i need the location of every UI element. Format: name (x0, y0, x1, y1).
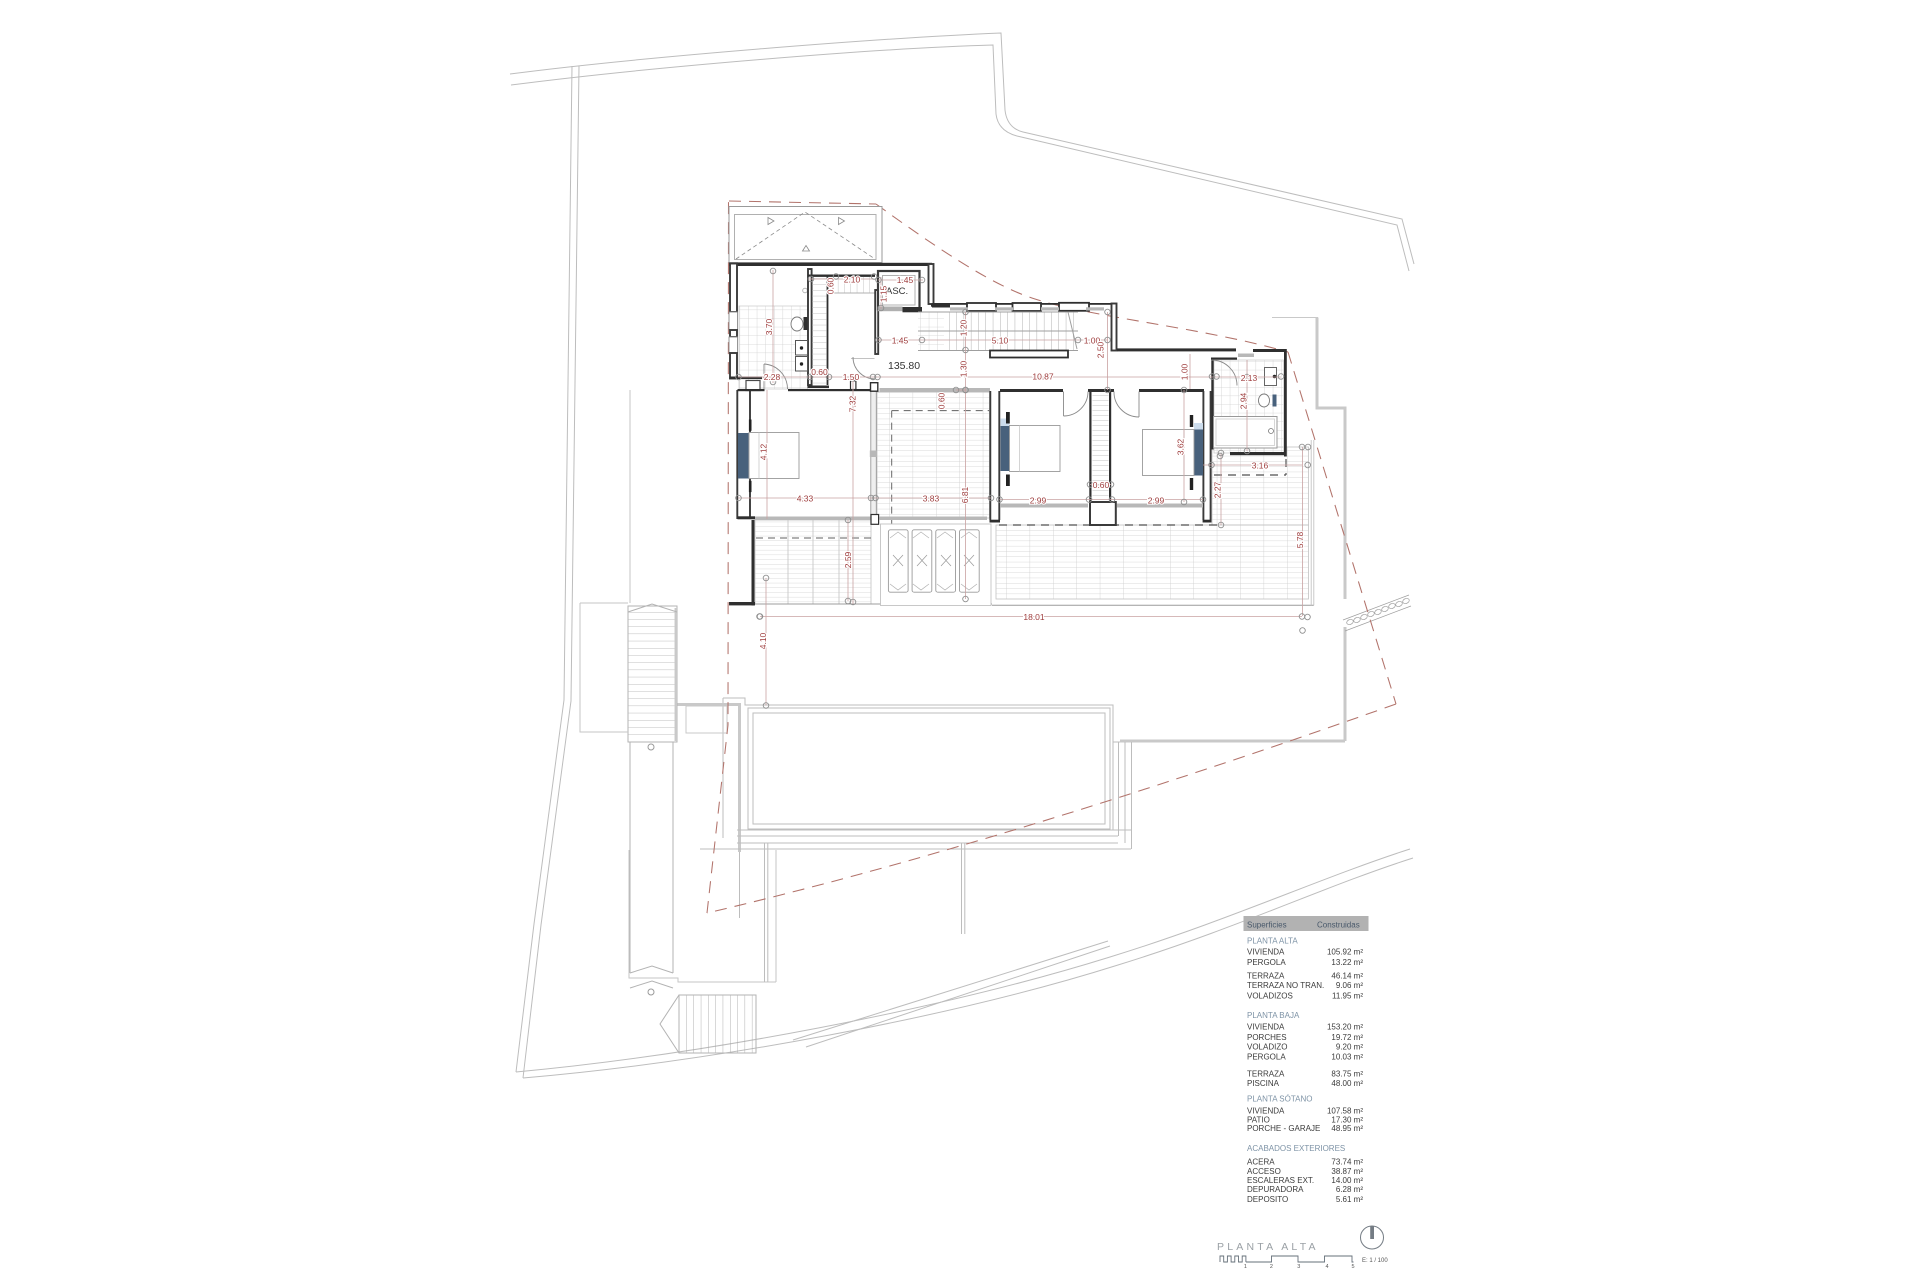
svg-text:4.10: 4.10 (758, 632, 768, 649)
svg-text:1.00: 1.00 (1180, 363, 1190, 380)
svg-text:7.32: 7.32 (848, 395, 858, 412)
svg-text:153.20 m²: 153.20 m² (1327, 1023, 1363, 1032)
svg-text:PLANTA ALTA: PLANTA ALTA (1247, 937, 1298, 946)
svg-text:ASC.: ASC. (886, 286, 908, 297)
svg-text:1.20: 1.20 (959, 319, 969, 336)
svg-text:DEPURADORA: DEPURADORA (1247, 1185, 1304, 1194)
svg-text:ACCESO: ACCESO (1247, 1167, 1281, 1176)
svg-text:PLANTA BAJA: PLANTA BAJA (1247, 1011, 1300, 1020)
svg-text:135.80: 135.80 (888, 360, 920, 372)
svg-text:3.83: 3.83 (923, 494, 940, 504)
svg-text:4.33: 4.33 (797, 494, 814, 504)
svg-text:PLANTA SÓTANO: PLANTA SÓTANO (1247, 1095, 1313, 1104)
svg-text:3.62: 3.62 (1176, 438, 1186, 455)
svg-text:1.50: 1.50 (843, 372, 860, 382)
svg-text:TERRAZA: TERRAZA (1247, 1070, 1285, 1079)
svg-text:48.00 m²: 48.00 m² (1331, 1079, 1363, 1088)
svg-text:18.01: 18.01 (1023, 612, 1045, 622)
svg-text:2.27: 2.27 (1213, 481, 1223, 498)
svg-text:2.28: 2.28 (764, 372, 781, 382)
svg-text:PISCINA: PISCINA (1247, 1079, 1280, 1088)
svg-text:2.13: 2.13 (1241, 373, 1258, 383)
svg-text:TERRAZA NO TRAN.: TERRAZA NO TRAN. (1247, 981, 1324, 990)
svg-text:ESCALERAS EXT.: ESCALERAS EXT. (1247, 1176, 1314, 1185)
svg-text:6.28 m²: 6.28 m² (1336, 1185, 1363, 1194)
svg-text:VOLADIZO: VOLADIZO (1247, 1043, 1287, 1052)
svg-text:0.60: 0.60 (826, 277, 836, 294)
svg-text:1.45: 1.45 (892, 336, 909, 346)
svg-text:9.06 m²: 9.06 m² (1336, 981, 1363, 990)
svg-text:5.78: 5.78 (1295, 531, 1305, 548)
svg-text:11.95 m²: 11.95 m² (1332, 992, 1363, 1001)
svg-text:1: 1 (1244, 1264, 1247, 1270)
svg-text:38.87 m²: 38.87 m² (1331, 1167, 1363, 1176)
svg-text:Construidas: Construidas (1317, 921, 1360, 930)
svg-text:VIVIENDA: VIVIENDA (1247, 948, 1285, 957)
svg-text:5.61 m²: 5.61 m² (1336, 1195, 1363, 1204)
svg-text:83.75 m²: 83.75 m² (1331, 1070, 1363, 1079)
svg-text:PORCHE - GARAJE: PORCHE - GARAJE (1247, 1124, 1320, 1133)
svg-text:46.14 m²: 46.14 m² (1331, 972, 1363, 981)
svg-text:2.94: 2.94 (1239, 392, 1249, 409)
svg-text:1.15: 1.15 (879, 285, 889, 302)
svg-text:9.20 m²: 9.20 m² (1336, 1043, 1363, 1052)
svg-text:PERGOLA: PERGOLA (1247, 958, 1286, 967)
svg-text:ACABADOS EXTERIORES: ACABADOS EXTERIORES (1247, 1144, 1345, 1153)
svg-text:105.92 m²: 105.92 m² (1327, 948, 1363, 957)
svg-text:DEPOSITO: DEPOSITO (1247, 1195, 1288, 1204)
svg-text:73.74 m²: 73.74 m² (1331, 1158, 1363, 1167)
svg-text:TERRAZA: TERRAZA (1247, 972, 1285, 981)
svg-text:19.72 m²: 19.72 m² (1331, 1033, 1363, 1042)
svg-text:5: 5 (1351, 1264, 1354, 1270)
svg-text:PERGOLA: PERGOLA (1247, 1053, 1286, 1062)
svg-text:4.12: 4.12 (759, 443, 769, 460)
svg-text:2.59: 2.59 (843, 551, 853, 568)
svg-text:6.81: 6.81 (960, 486, 970, 503)
svg-text:E: 1 / 100: E: 1 / 100 (1362, 1258, 1388, 1264)
svg-text:0.60: 0.60 (937, 392, 947, 409)
svg-text:3: 3 (1297, 1264, 1300, 1270)
svg-text:14.00 m²: 14.00 m² (1331, 1176, 1363, 1185)
svg-text:3.70: 3.70 (764, 318, 774, 335)
svg-text:107.58 m²: 107.58 m² (1327, 1107, 1363, 1116)
svg-text:PLANTA ALTA: PLANTA ALTA (1217, 1241, 1319, 1253)
svg-text:13.22 m²: 13.22 m² (1331, 958, 1363, 967)
svg-text:0.60: 0.60 (1093, 480, 1110, 490)
svg-text:VIVIENDA: VIVIENDA (1247, 1023, 1285, 1032)
svg-text:VIVIENDA: VIVIENDA (1247, 1107, 1285, 1116)
svg-text:VOLADIZOS: VOLADIZOS (1247, 992, 1293, 1001)
svg-text:0.60: 0.60 (811, 367, 828, 377)
svg-text:ACERA: ACERA (1247, 1158, 1275, 1167)
svg-text:10.03 m²: 10.03 m² (1331, 1053, 1363, 1062)
svg-text:Superficies: Superficies (1247, 921, 1287, 930)
svg-text:48.95 m²: 48.95 m² (1331, 1124, 1363, 1133)
svg-text:4: 4 (1325, 1264, 1328, 1270)
svg-text:PORCHES: PORCHES (1247, 1033, 1287, 1042)
svg-text:2.99: 2.99 (1030, 496, 1047, 506)
svg-text:3.16: 3.16 (1252, 461, 1269, 471)
svg-text:2.50: 2.50 (1096, 341, 1106, 358)
svg-text:2: 2 (1270, 1264, 1273, 1270)
svg-text:10.87: 10.87 (1032, 372, 1054, 382)
svg-text:1.30: 1.30 (959, 360, 969, 377)
svg-text:1.45: 1.45 (897, 275, 914, 285)
svg-text:2.99: 2.99 (1148, 496, 1165, 506)
svg-text:5.10: 5.10 (992, 336, 1009, 346)
svg-text:2.10: 2.10 (844, 275, 861, 285)
